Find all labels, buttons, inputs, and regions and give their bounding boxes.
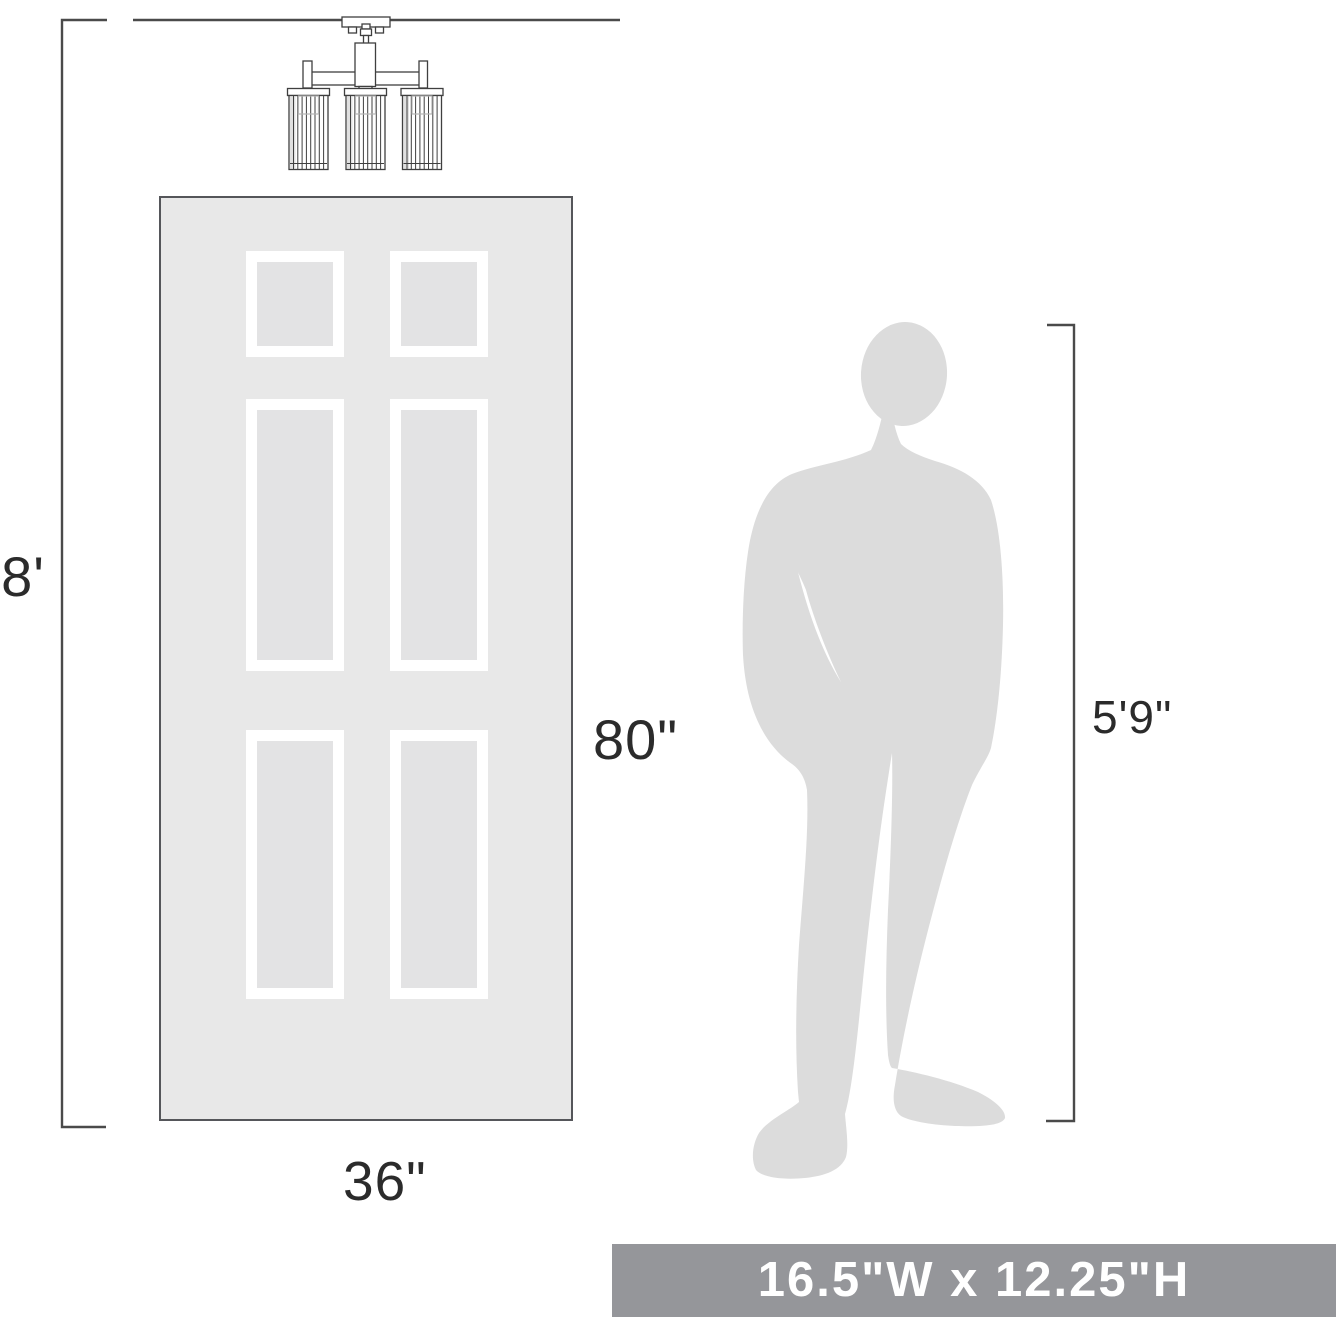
- ceiling-height-bracket: [62, 20, 107, 1127]
- person-height-label: 5'9": [1092, 694, 1172, 740]
- door-panel: [246, 399, 344, 671]
- size-banner-text: 16.5"W x 12.25"H: [758, 1253, 1191, 1307]
- size-banner: 16.5"W x 12.25"H: [612, 1244, 1336, 1317]
- door-height-label: 80": [593, 712, 678, 768]
- door-panel-inner: [401, 262, 477, 346]
- door-panel-inner: [257, 410, 333, 660]
- door-panel: [390, 730, 488, 999]
- person-silhouette-icon: [743, 319, 1005, 1179]
- door-panel: [390, 251, 488, 357]
- door-panel-inner: [401, 410, 477, 660]
- door-outline: [159, 196, 573, 1121]
- door-width-label: 36": [343, 1154, 427, 1209]
- door-panel: [246, 730, 344, 999]
- door-panel-inner: [257, 262, 333, 346]
- ceiling-fixture-icon: [288, 17, 444, 170]
- door-panel: [246, 251, 344, 357]
- door-panel-inner: [257, 741, 333, 988]
- person-height-bracket: [1046, 325, 1074, 1121]
- ceiling-height-label: 8': [0, 549, 45, 605]
- door-panel: [390, 399, 488, 671]
- right-shade: [401, 89, 443, 170]
- center-shade: [345, 89, 387, 170]
- dimension-diagram: 8' 80" 36" 5'9" 16.5"W x 12.25"H: [0, 0, 1336, 1336]
- door-panel-inner: [401, 741, 477, 988]
- left-shade: [288, 89, 330, 170]
